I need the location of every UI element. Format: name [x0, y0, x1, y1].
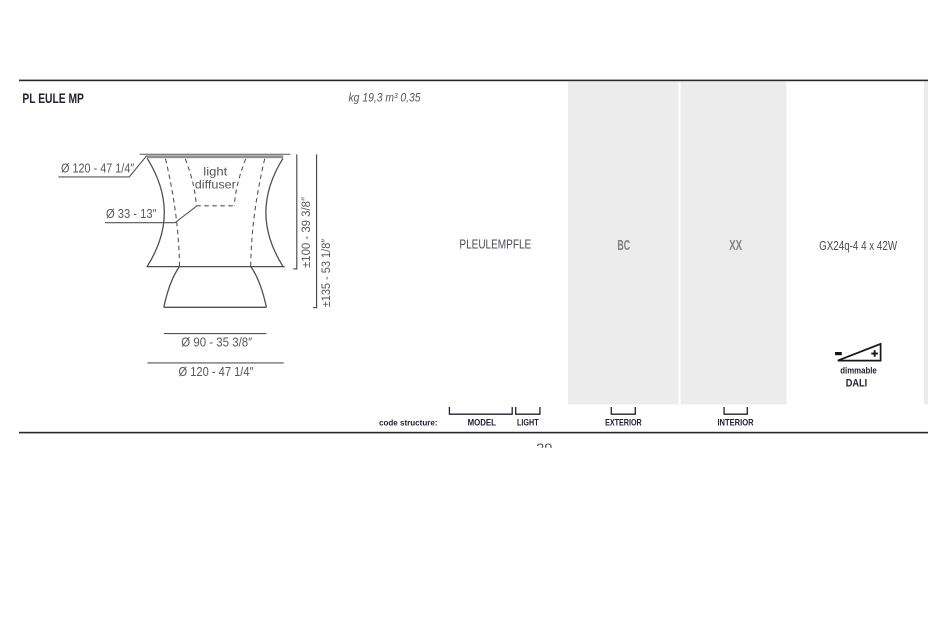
svg-text:PL EULE MP: PL EULE MP	[22, 90, 83, 106]
svg-text:Ø 120 - 47 1/4″: Ø 120 - 47 1/4″	[179, 364, 254, 379]
svg-text:Ø 90 - 35 3/8″: Ø 90 - 35 3/8″	[181, 335, 252, 350]
svg-text:dimmable: dimmable	[840, 366, 877, 377]
svg-text:BC: BC	[617, 237, 630, 254]
svg-text:Ø 33 - 13″: Ø 33 - 13″	[106, 206, 157, 221]
svg-text:kg 19,3 m³ 0,35: kg 19,3 m³ 0,35	[349, 91, 421, 105]
svg-text:DALI: DALI	[846, 377, 868, 389]
svg-text:LIGHT: LIGHT	[517, 418, 539, 428]
svg-text:GX24q-4 4 x 42W: GX24q-4 4 x 42W	[819, 238, 898, 253]
svg-text:INTERIOR: INTERIOR	[717, 418, 754, 428]
svg-text:MODEL: MODEL	[468, 418, 497, 428]
svg-text:PLEULEMPFLE: PLEULEMPFLE	[459, 236, 531, 251]
svg-text:±135 - 53 1/8″: ±135 - 53 1/8″	[321, 239, 333, 308]
svg-text:light: light	[203, 164, 228, 178]
svg-text:code structure:: code structure:	[379, 418, 438, 428]
svg-text:Ø 120 - 47 1/4″: Ø 120 - 47 1/4″	[61, 160, 135, 175]
svg-text:EXTERIOR: EXTERIOR	[605, 418, 642, 428]
svg-text:diffuser: diffuser	[195, 177, 236, 191]
svg-text:XX: XX	[729, 237, 742, 254]
svg-text:±100 - 39 3/8″: ±100 - 39 3/8″	[301, 197, 313, 268]
